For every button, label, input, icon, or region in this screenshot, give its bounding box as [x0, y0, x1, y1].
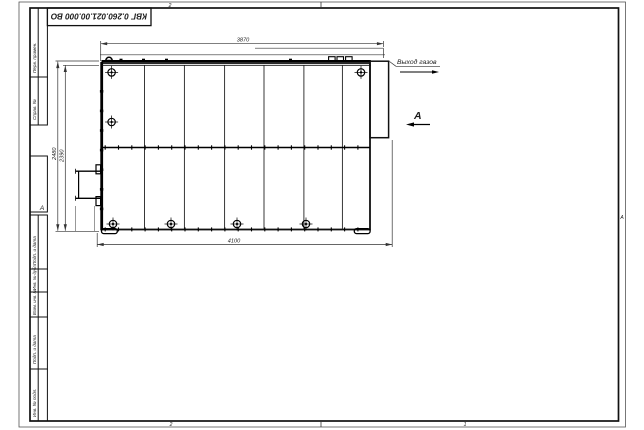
svg-text:Подп. и дата: Подп. и дата — [32, 335, 37, 364]
svg-text:А: А — [39, 205, 44, 212]
svg-text:КВГ 0.260.021.00.000 ВО: КВГ 0.260.021.00.000 ВО — [50, 12, 147, 21]
svg-text:1: 1 — [464, 422, 467, 428]
svg-text:А: А — [413, 110, 422, 122]
svg-text:Справ. №: Справ. № — [32, 99, 37, 120]
svg-text:2480: 2480 — [52, 147, 58, 161]
svg-text:2: 2 — [169, 422, 173, 428]
svg-text:Подп. и дата: Подп. и дата — [32, 236, 37, 265]
svg-text:Перв. примен.: Перв. примен. — [32, 42, 37, 73]
svg-text:4100: 4100 — [228, 239, 241, 245]
svg-text:Инв. № дубл.: Инв. № дубл. — [32, 264, 37, 290]
svg-text:Выход газов: Выход газов — [397, 58, 437, 66]
svg-text:Взам. инв. №: Взам. инв. № — [32, 289, 37, 315]
svg-text:Инв. № подл.: Инв. № подл. — [32, 388, 37, 417]
svg-text:А: А — [619, 215, 624, 221]
svg-text:2390: 2390 — [60, 149, 66, 163]
svg-text:3870: 3870 — [237, 38, 250, 44]
